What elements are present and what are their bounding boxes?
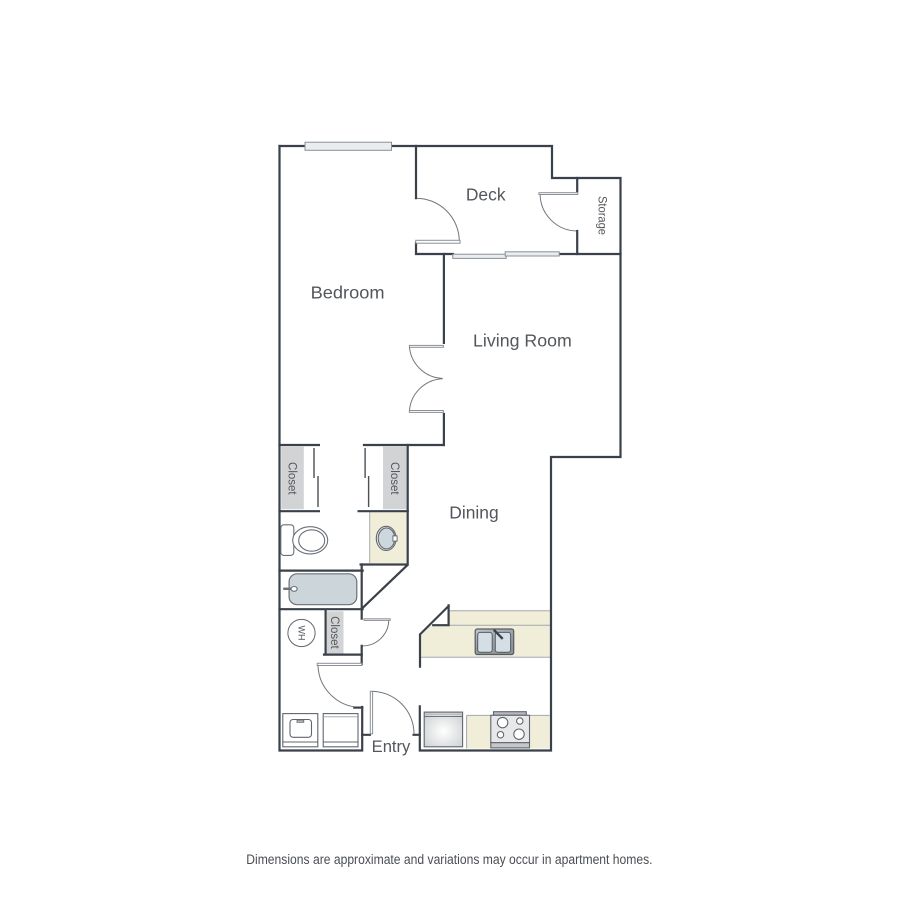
svg-text:Dimensions are approximate and: Dimensions are approximate and variation…	[246, 852, 652, 867]
svg-text:Storage: Storage	[595, 196, 609, 235]
svg-text:Entry: Entry	[372, 738, 412, 756]
svg-text:Closet: Closet	[388, 462, 400, 495]
svg-text:Closet: Closet	[328, 616, 342, 649]
svg-text:Living Room: Living Room	[473, 330, 572, 350]
svg-text:Deck: Deck	[466, 185, 506, 205]
svg-text:Closet: Closet	[286, 462, 300, 495]
svg-text:Dining: Dining	[449, 502, 498, 522]
svg-text:Bedroom: Bedroom	[311, 283, 385, 303]
svg-text:WH: WH	[297, 626, 307, 641]
